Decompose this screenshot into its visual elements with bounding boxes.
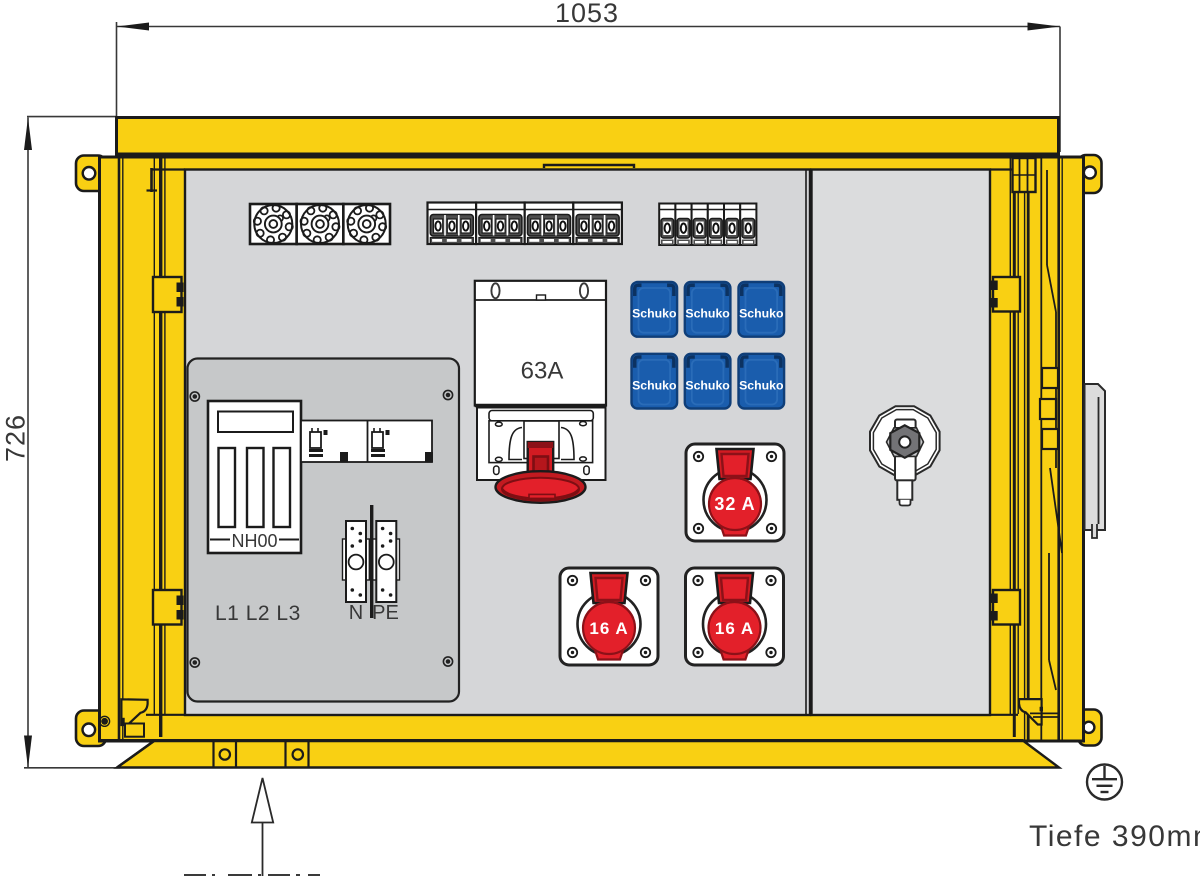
svg-text:Schuko: Schuko xyxy=(685,378,730,392)
svg-text:1053: 1053 xyxy=(555,0,619,28)
svg-text:Tiefe 390mm: Tiefe 390mm xyxy=(1029,820,1200,853)
svg-text:63A: 63A xyxy=(521,358,564,385)
svg-text:PE: PE xyxy=(372,602,399,624)
svg-text:726: 726 xyxy=(1,414,31,462)
svg-text:N: N xyxy=(349,602,363,624)
svg-text:L1 L2 L3: L1 L2 L3 xyxy=(215,602,301,625)
svg-text:Schuko: Schuko xyxy=(739,378,784,392)
svg-text:Schuko: Schuko xyxy=(685,307,730,321)
svg-text:16 A: 16 A xyxy=(715,619,754,638)
svg-text:Schuko: Schuko xyxy=(739,307,784,321)
svg-text:Schuko: Schuko xyxy=(632,378,677,392)
svg-text:32 A: 32 A xyxy=(714,494,755,514)
svg-text:NH00: NH00 xyxy=(231,531,277,551)
svg-text:16 A: 16 A xyxy=(589,619,628,638)
svg-text:Schuko: Schuko xyxy=(632,307,677,321)
